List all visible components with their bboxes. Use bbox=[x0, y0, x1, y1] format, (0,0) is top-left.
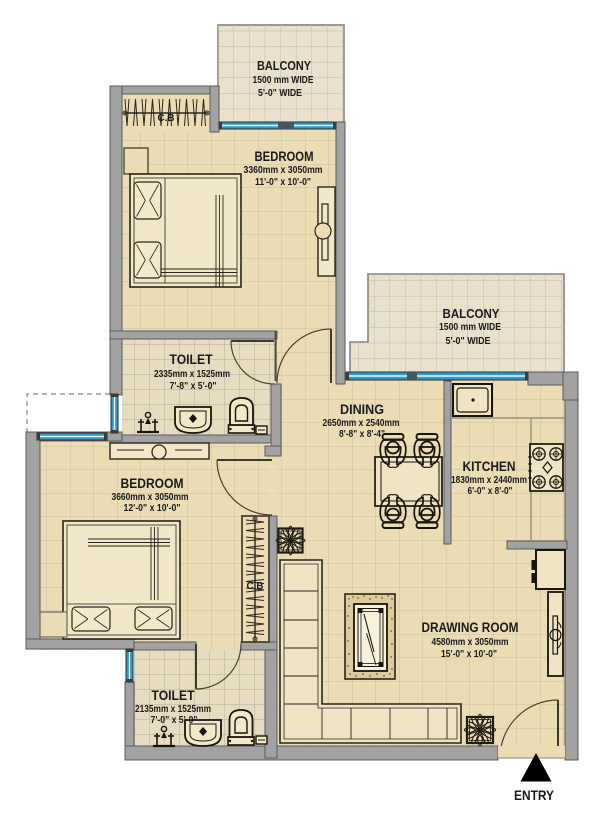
svg-text:C.B: C.B bbox=[247, 581, 264, 592]
svg-text:6'-0" x 8'-0": 6'-0" x 8'-0" bbox=[468, 485, 513, 497]
svg-text:3360mm x 3050mm: 3360mm x 3050mm bbox=[244, 164, 323, 176]
svg-text:2335mm x 1525mm: 2335mm x 1525mm bbox=[154, 368, 230, 380]
svg-text:12'-0" x 10'-0": 12'-0" x 10'-0" bbox=[124, 502, 181, 514]
svg-text:KITCHEN: KITCHEN bbox=[463, 458, 516, 474]
svg-text:5'-0" WIDE: 5'-0" WIDE bbox=[446, 335, 491, 347]
svg-text:4580mm x 3050mm: 4580mm x 3050mm bbox=[432, 636, 509, 648]
svg-text:1500 mm WIDE: 1500 mm WIDE bbox=[439, 321, 501, 333]
svg-text:7'-0" x 5'-0": 7'-0" x 5'-0" bbox=[151, 714, 198, 726]
svg-text:ENTRY: ENTRY bbox=[514, 787, 555, 803]
svg-text:8'-8" x 8'-4": 8'-8" x 8'-4" bbox=[339, 428, 385, 440]
svg-text:TOILET: TOILET bbox=[152, 688, 196, 703]
svg-text:5'-0" WIDE: 5'-0" WIDE bbox=[258, 87, 302, 99]
svg-text:BALCONY: BALCONY bbox=[257, 58, 311, 73]
svg-text:DINING: DINING bbox=[340, 401, 384, 417]
svg-text:1500 mm WIDE: 1500 mm WIDE bbox=[253, 74, 314, 86]
svg-text:BEDROOM: BEDROOM bbox=[255, 149, 314, 164]
svg-text:DRAWING ROOM: DRAWING ROOM bbox=[422, 620, 519, 635]
svg-text:BEDROOM: BEDROOM bbox=[121, 476, 184, 491]
svg-text:15'-0" x 10'-0": 15'-0" x 10'-0" bbox=[441, 648, 497, 660]
svg-text:11'-0" x 10'-0": 11'-0" x 10'-0" bbox=[255, 176, 311, 188]
svg-text:7'-8" x 5'-0": 7'-8" x 5'-0" bbox=[170, 380, 217, 392]
svg-text:C.B: C.B bbox=[158, 113, 175, 124]
svg-text:TOILET: TOILET bbox=[170, 352, 214, 367]
svg-text:BALCONY: BALCONY bbox=[443, 306, 500, 321]
